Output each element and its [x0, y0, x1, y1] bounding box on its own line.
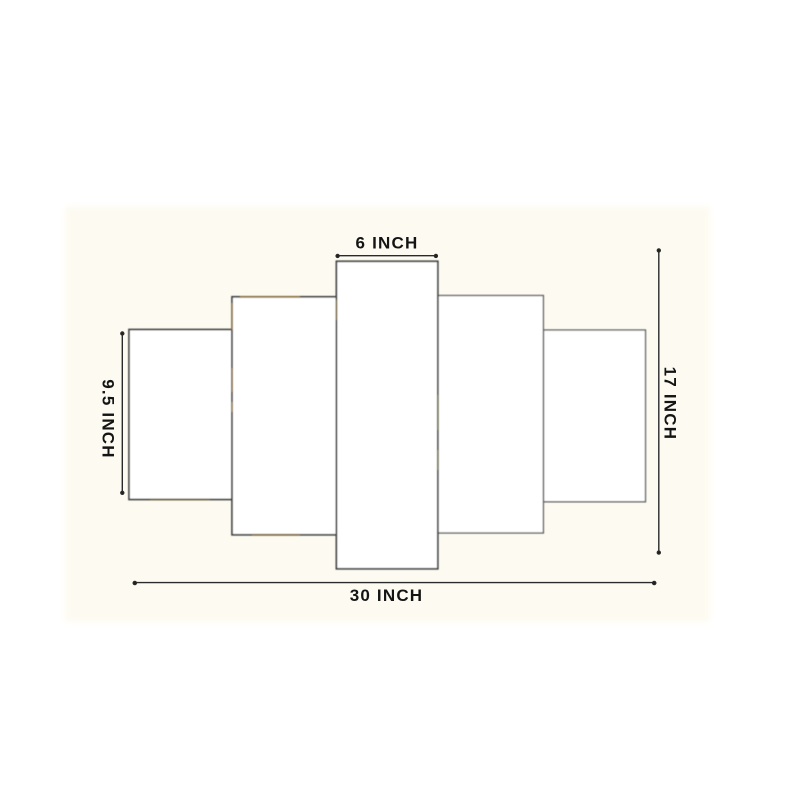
- svg-text:30 INCH: 30 INCH: [350, 586, 424, 605]
- svg-text:6 INCH: 6 INCH: [356, 233, 419, 252]
- svg-text:9.5 INCH: 9.5 INCH: [99, 379, 118, 459]
- svg-text:17 INCH: 17 INCH: [660, 367, 679, 441]
